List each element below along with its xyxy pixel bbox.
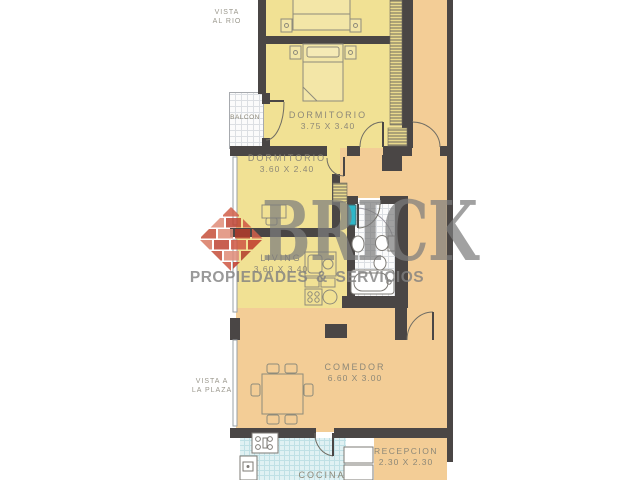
room-name: DORMITORIO [289,110,367,121]
room-name: COMEDOR [325,362,386,373]
room-label-dormitorio-2: DORMITORIO 3.60 X 2.40 [248,153,326,175]
watermark-brand: BRICK [262,201,477,265]
cabinet-icon [344,465,373,480]
view-label-plaza-line1: VISTA A [192,377,232,386]
view-label-rio-line2: AL RIO [213,17,242,26]
window-strips [233,157,237,426]
room-name: DORMITORIO [248,153,326,164]
view-label-plaza: VISTA A LA PLAZA [192,377,232,395]
view-label-rio: VISTA AL RIO [213,8,242,26]
view-label-plaza-line2: LA PLAZA [192,386,232,395]
room-label-balcon: BALCON [230,114,260,122]
room-dims: 2.30 X 2.30 [374,457,438,468]
brick-logo-icon [197,205,265,273]
room-dims: 3.75 X 3.40 [289,121,367,132]
floor-plan: VISTA AL RIO BALCON DORMITORIO 3.75 X 3.… [0,0,640,480]
room-dims: 3.60 X 2.40 [248,164,326,175]
dining-table-icon [251,364,313,424]
room-label-comedor: COMEDOR 6.60 X 3.00 [325,362,386,384]
view-label-rio-line1: VISTA [213,8,242,17]
room-label-dormitorio-1: DORMITORIO 3.75 X 3.40 [289,110,367,132]
stove-icon [252,433,278,453]
room-label-recepcion: RECEPCION 2.30 X 2.30 [374,446,438,467]
room-label-cocina: COCINA [298,470,345,480]
cabinet-icon [344,447,373,463]
room-dims: 6.60 X 3.00 [325,373,386,384]
room-name: RECEPCION [374,446,438,457]
bed-icon [290,44,356,101]
watermark-tagline: PROPIEDADES & SERVICIOS [190,269,424,287]
bed-icon [281,0,361,32]
